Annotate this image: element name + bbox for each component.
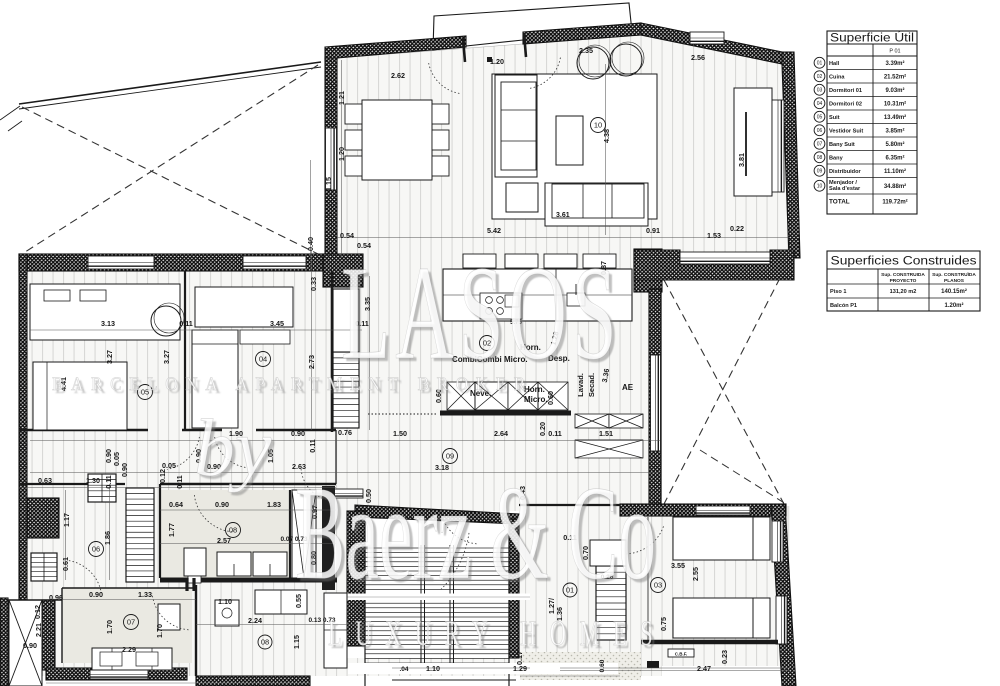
svg-text:PROYECTO: PROYECTO [890,278,917,284]
svg-text:1.15: 1.15 [324,177,333,191]
svg-text:1.20m²: 1.20m² [944,302,963,309]
svg-text:05: 05 [817,115,823,121]
svg-text:2.55: 2.55 [691,567,700,581]
svg-text:0.61: 0.61 [61,557,70,571]
svg-text:9.03m²: 9.03m² [885,87,904,94]
svg-text:Bany Suit: Bany Suit [829,142,855,148]
svg-text:2.24: 2.24 [248,616,262,625]
svg-text:Baerz & Co: Baerz & Co [295,458,656,607]
svg-text:2.64: 2.64 [494,429,508,438]
svg-text:34.88m²: 34.88m² [884,183,906,190]
svg-text:TOTAL: TOTAL [829,199,850,206]
svg-text:10: 10 [594,121,602,130]
svg-text:PLANOS: PLANOS [944,278,965,284]
svg-text:06: 06 [817,128,823,134]
svg-text:07: 07 [817,142,823,148]
svg-text:0.64: 0.64 [169,500,183,509]
svg-text:0.90: 0.90 [89,590,103,599]
svg-text:1.20: 1.20 [337,147,346,161]
svg-text:1.86: 1.86 [103,531,112,545]
svg-text:03: 03 [817,88,823,94]
svg-text:0.05: 0.05 [162,461,176,470]
svg-text:3.27: 3.27 [162,350,171,364]
svg-text:1.20: 1.20 [490,57,504,66]
svg-text:0.90: 0.90 [215,500,229,509]
svg-text:4.38: 4.38 [602,129,611,143]
svg-text:Sup. CONSTRUÏDA: Sup. CONSTRUÏDA [932,271,976,278]
svg-text:2.29: 2.29 [122,645,136,654]
svg-text:5.42: 5.42 [487,226,501,235]
svg-text:1.70: 1.70 [105,620,114,634]
svg-text:1.50: 1.50 [393,429,407,438]
svg-text:0.90: 0.90 [291,429,305,438]
svg-text:1.30: 1.30 [86,476,100,485]
svg-text:0.20: 0.20 [538,422,547,436]
svg-text:Superficies Construides: Superficies Construides [831,256,977,268]
svg-text:3.61: 3.61 [556,212,570,219]
svg-text:0.60: 0.60 [599,659,606,672]
svg-text:LASOS: LASOS [341,239,622,388]
svg-text:Vestidor Suit: Vestidor Suit [829,128,863,134]
svg-text:1.10: 1.10 [218,597,232,606]
svg-text:C.B.F.: C.B.F. [675,652,688,657]
svg-text:0.11: 0.11 [175,475,184,489]
svg-text:1.21: 1.21 [337,91,346,105]
svg-text:01: 01 [817,61,823,67]
svg-text:1.53: 1.53 [707,231,721,240]
svg-text:Bany: Bany [829,155,844,161]
svg-text:140.15m²: 140.15m² [941,288,967,295]
svg-text:2.62: 2.62 [391,71,405,80]
svg-text:BARCELONA APARTMENT BROKER: BARCELONA APARTMENT BROKER [52,373,533,394]
svg-text:1.15: 1.15 [292,635,301,649]
svg-text:06: 06 [92,545,100,554]
svg-text:3.13: 3.13 [101,319,115,328]
svg-text:0.63: 0.63 [38,476,52,485]
svg-text:0.22: 0.22 [730,224,744,233]
svg-text:0.91: 0.91 [646,226,660,235]
svg-text:3.55: 3.55 [671,561,685,570]
svg-text:1.83: 1.83 [267,500,281,509]
svg-text:6.35m²: 6.35m² [885,154,904,161]
svg-text:0.60: 0.60 [546,391,555,405]
svg-text:Superficie Útil: Superficie Útil [830,32,914,45]
svg-text:Sup. CONSTRUIDA: Sup. CONSTRUIDA [881,272,925,278]
svg-text:2.56: 2.56 [691,53,705,62]
svg-text:21.52m²: 21.52m² [884,73,906,80]
svg-text:0.90: 0.90 [23,641,37,650]
svg-text:0.12: 0.12 [33,605,42,619]
svg-text:0.76: 0.76 [338,428,352,437]
svg-text:11.10m²: 11.10m² [884,168,906,175]
svg-text:Dormitori 02: Dormitori 02 [829,101,862,107]
svg-text:Sala d'estar: Sala d'estar [829,186,861,192]
svg-text:5.80m²: 5.80m² [885,141,904,148]
svg-text:by: by [194,402,272,493]
svg-text:0.11: 0.11 [179,319,193,328]
svg-text:Hall: Hall [829,61,840,67]
svg-text:02: 02 [817,74,823,80]
svg-text:3.27: 3.27 [105,350,114,364]
svg-text:13.49m²: 13.49m² [884,114,906,121]
svg-text:2.47: 2.47 [697,664,711,673]
svg-text:04: 04 [817,101,823,107]
svg-text:3.81: 3.81 [737,153,746,167]
svg-text:LUXURY HOMES: LUXURY HOMES [328,614,666,654]
svg-text:09: 09 [817,169,823,175]
svg-text:0.11: 0.11 [104,475,113,489]
svg-text:Dormitori 01: Dormitori 01 [829,88,862,94]
svg-text:2.57: 2.57 [217,536,231,545]
svg-text:Suit: Suit [829,115,840,121]
svg-text:1.33: 1.33 [138,590,152,599]
svg-text:07: 07 [127,618,135,627]
svg-text:10: 10 [817,184,823,190]
svg-text:08: 08 [261,638,269,647]
svg-text:0.11: 0.11 [548,429,562,438]
svg-text:08: 08 [229,526,237,535]
svg-text:04: 04 [259,355,267,364]
svg-text:0.33: 0.33 [309,277,318,291]
svg-text:1.10: 1.10 [426,664,440,673]
svg-text:0.90: 0.90 [120,463,129,477]
svg-text:Distribuidor: Distribuidor [829,169,862,175]
svg-text:08: 08 [817,155,823,161]
svg-text:1.51: 1.51 [599,429,613,438]
svg-text:3.39m²: 3.39m² [885,60,904,67]
svg-text:.04: .04 [399,666,408,673]
svg-text:0.11: 0.11 [308,439,317,453]
svg-text:10.31m²: 10.31m² [884,100,906,107]
svg-text:Piso 1: Piso 1 [830,289,846,295]
svg-text:0.96: 0.96 [49,593,63,602]
svg-text:Balcón P1: Balcón P1 [830,303,857,309]
svg-text:119.72m²: 119.72m² [882,199,907,206]
svg-text:131,20 m2: 131,20 m2 [890,289,917,295]
svg-text:0.40: 0.40 [306,237,315,251]
svg-text:Cuina: Cuina [829,74,845,80]
svg-text:3.45: 3.45 [270,319,284,328]
svg-text:1.17: 1.17 [62,513,71,527]
svg-text:1.77: 1.77 [167,523,176,537]
svg-text:3.85m²: 3.85m² [885,127,904,134]
svg-text:1.70: 1.70 [155,624,164,638]
svg-text:2.35: 2.35 [579,46,593,55]
svg-text:0.12: 0.12 [158,469,167,483]
svg-text:P 01: P 01 [889,49,900,55]
svg-text:2.73: 2.73 [307,355,316,369]
svg-text:2.21: 2.21 [34,623,43,637]
svg-text:0.23: 0.23 [720,650,729,664]
